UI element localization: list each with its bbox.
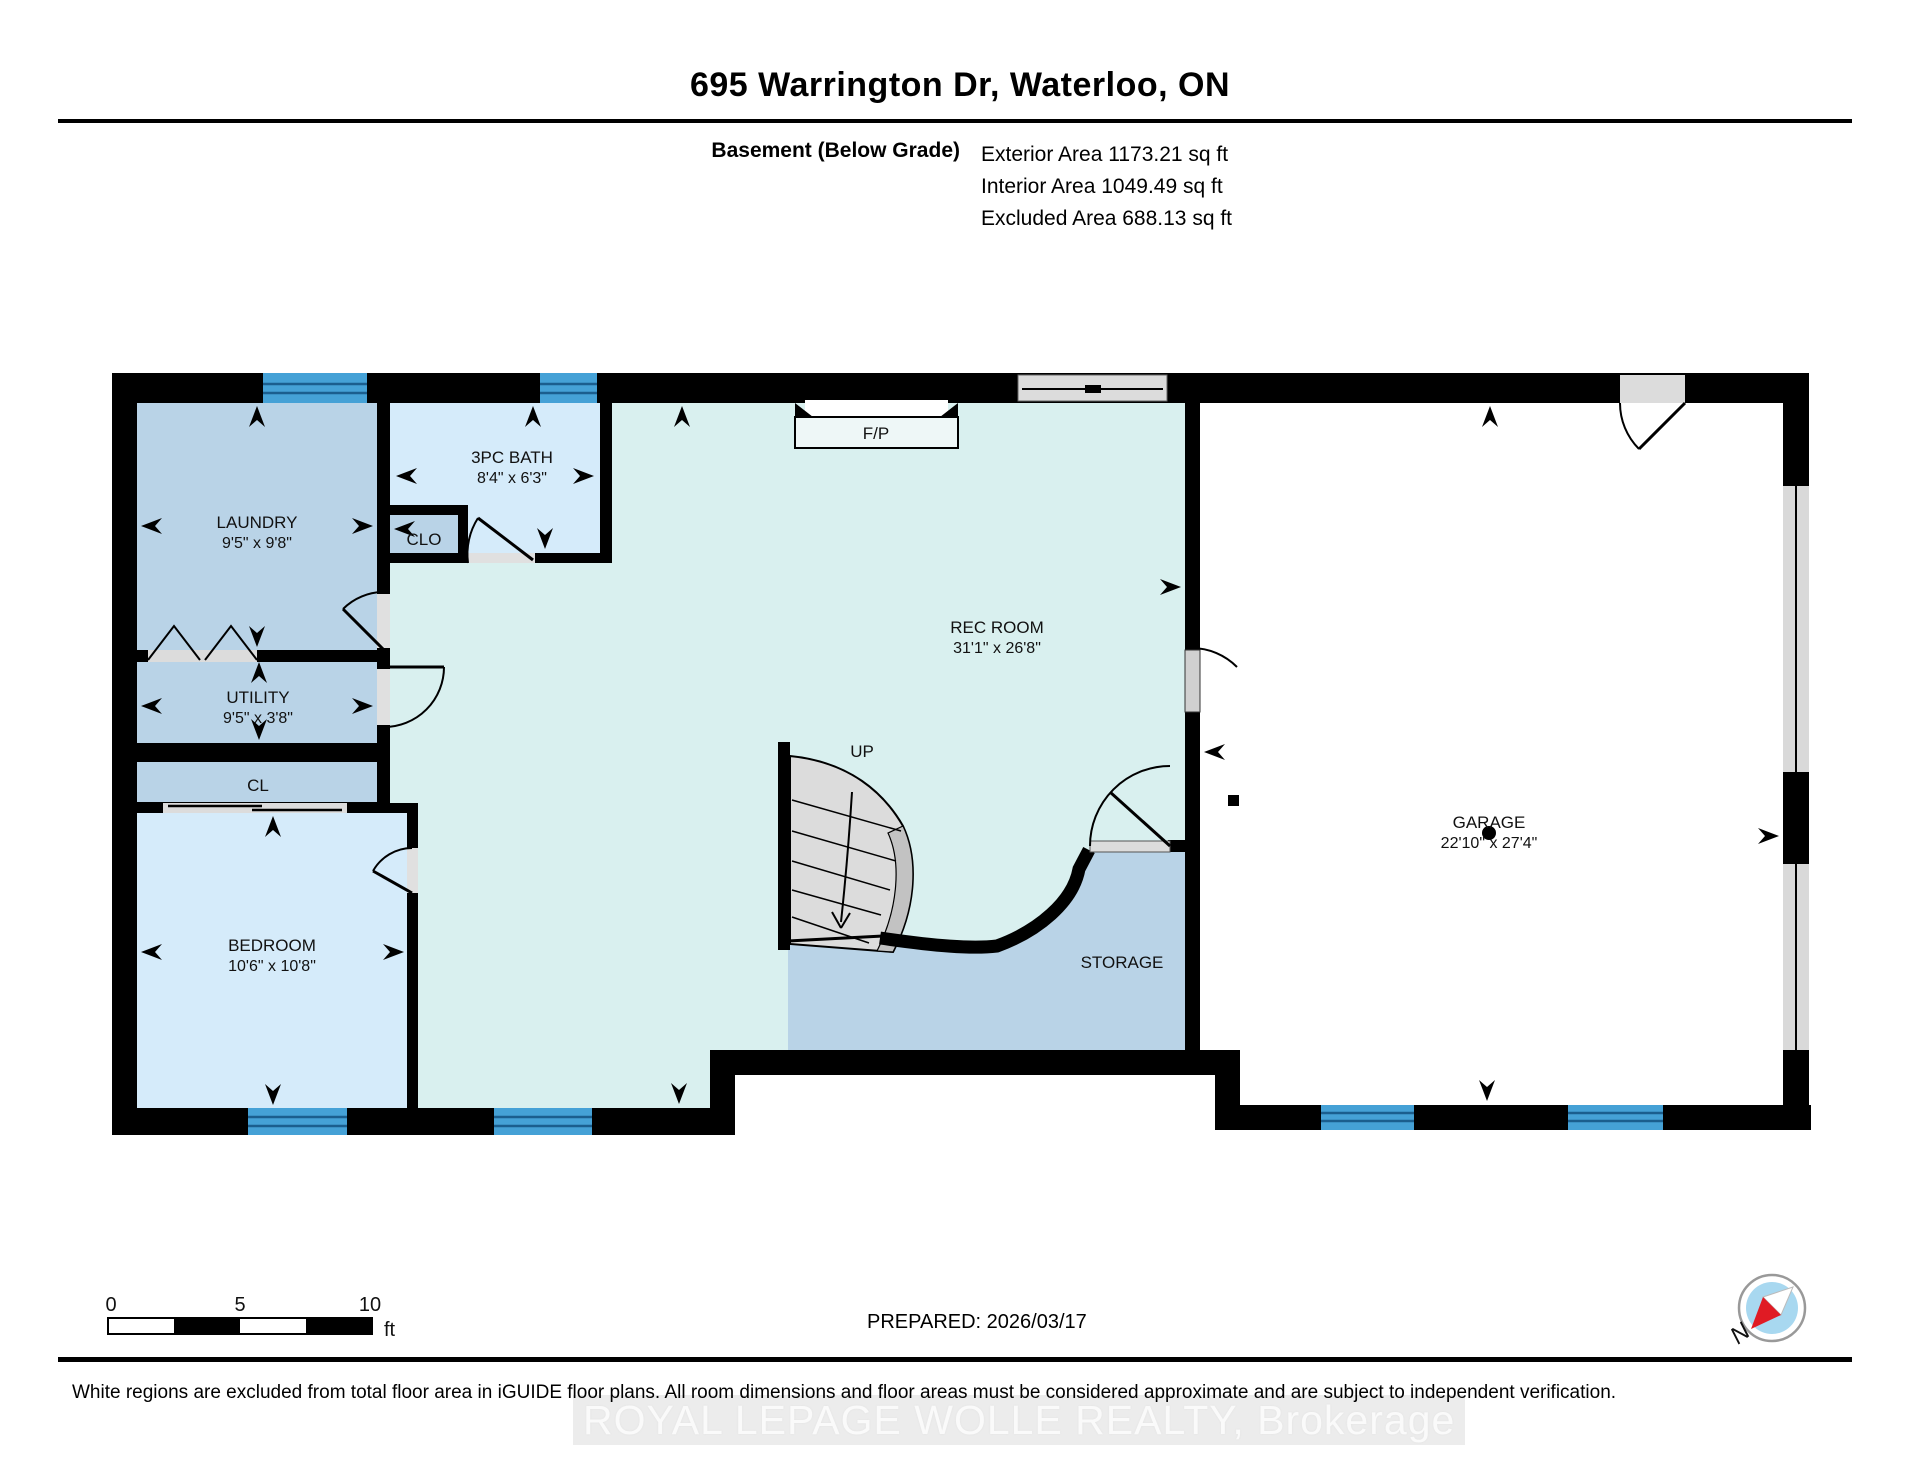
window-rec-room [494, 1108, 592, 1135]
scale-tick-10: 10 [359, 1294, 381, 1316]
stairs-up-label: UP [850, 742, 874, 761]
window-bath [540, 373, 597, 403]
entry-landing [1018, 375, 1167, 401]
prepared-date: PREPARED: 2026/03/17 [867, 1311, 1087, 1334]
storage-door-opening [1090, 841, 1170, 852]
fireplace: F/P [795, 400, 958, 448]
footer-divider [58, 1357, 1852, 1362]
fireplace-label: F/P [863, 424, 889, 443]
wall-stair-side [778, 742, 790, 950]
bedroom-dims: 10'6" x 10'8" [228, 958, 316, 975]
arrow-garage-right [1758, 828, 1779, 844]
wall-bottom-mid-section [710, 1050, 1240, 1075]
garage-entry-door [1620, 403, 1685, 449]
floorplan-drawing: F/P [0, 0, 1920, 1484]
laundry-door-opening [377, 594, 390, 648]
storage-label: STORAGE [1081, 953, 1164, 972]
compass-icon: N [1725, 1275, 1805, 1350]
laundry-dims: 9'5" x 9'8" [222, 535, 292, 552]
arrow-garage-left [1204, 744, 1225, 760]
cl-sliding-door [163, 803, 347, 813]
arrow-garage-up [1482, 406, 1498, 427]
utility-dims: 9'5" x 3'8" [223, 710, 293, 727]
arrow-garage-down [1479, 1080, 1495, 1101]
wall-storage-door-jamb [1168, 840, 1188, 852]
garage-post-marker [1228, 795, 1239, 806]
bath-label: 3PC BATH [471, 448, 553, 467]
window-bedroom [248, 1108, 347, 1135]
scale-unit: ft [384, 1319, 396, 1341]
window-garage-1 [1321, 1105, 1414, 1130]
window-garage-right-lower [1783, 864, 1809, 1050]
rec-room-dims: 31'1" x 26'8" [953, 640, 1041, 657]
wall-bottom-left-section [112, 1108, 735, 1135]
window-garage-2 [1568, 1105, 1663, 1130]
window-garage-right-upper [1783, 486, 1809, 772]
laundry-label: LAUNDRY [217, 513, 298, 532]
floorplan-page: 695 Warrington Dr, Waterloo, ON Basement… [0, 0, 1920, 1484]
bedroom-door-opening [407, 848, 418, 893]
bedroom-label: BEDROOM [228, 936, 316, 955]
wall-rec-garage [1185, 403, 1200, 1075]
wall-bath-right [600, 403, 612, 563]
utility-label: UTILITY [226, 688, 289, 707]
rec-room-label: REC ROOM [950, 618, 1044, 637]
garage-label: GARAGE [1453, 813, 1526, 832]
utility-door-opening [377, 669, 390, 725]
scale-bar: 0 5 10 ft [105, 1294, 395, 1341]
rec-garage-door-leaf [1185, 650, 1200, 712]
scale-tick-0: 0 [105, 1294, 116, 1316]
wall-jog [377, 803, 418, 813]
disclaimer-text: White regions are excluded from total fl… [72, 1382, 1616, 1404]
garage-dims: 22'10" x 27'4" [1441, 835, 1538, 852]
clo-label: CLO [407, 530, 442, 549]
garage-entry-opening [1620, 375, 1685, 403]
bath-dims: 8'4" x 6'3" [477, 470, 547, 487]
scale-tick-5: 5 [234, 1294, 245, 1316]
rec-room-floor-lobe [418, 1050, 710, 1108]
wall-utility-cl [137, 743, 390, 762]
cl-label: CL [247, 776, 269, 795]
wall-clo-top [388, 505, 468, 515]
wall-bottom-garage [1215, 1105, 1811, 1130]
window-laundry [263, 373, 367, 403]
wall-left [112, 373, 137, 1135]
